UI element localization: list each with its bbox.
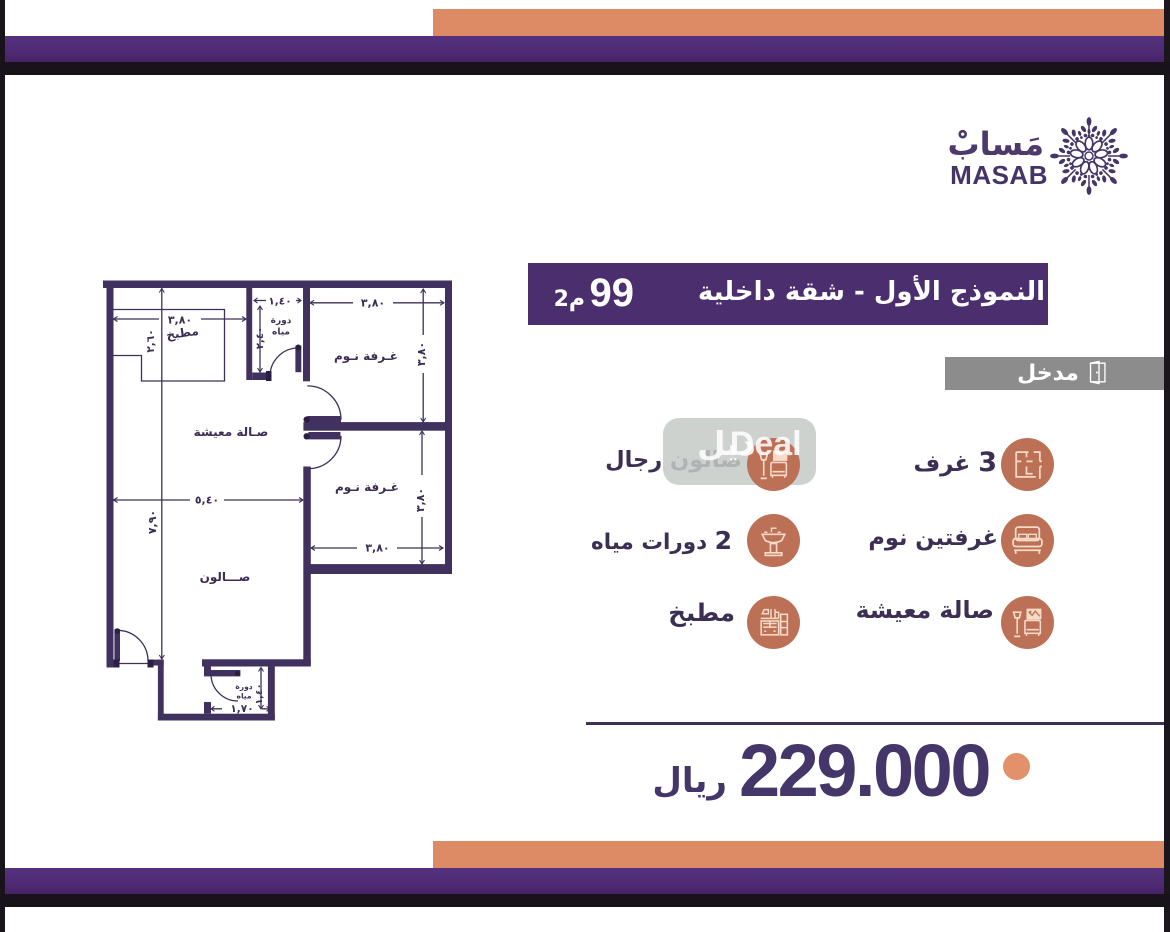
svg-text:صـــالون: صـــالون bbox=[200, 570, 251, 585]
svg-text:٧,٩٠: ٧,٩٠ bbox=[146, 510, 159, 534]
svg-text:صـالة معيشة: صـالة معيشة bbox=[194, 425, 269, 439]
svg-text:مطبخ: مطبخ bbox=[165, 324, 199, 342]
svg-text:١,٤٠: ١,٤٠ bbox=[254, 683, 265, 704]
svg-text:مياه: مياه bbox=[237, 692, 252, 701]
svg-text:دورة: دورة bbox=[235, 682, 252, 691]
svg-text:٣,٨٠: ٣,٨٠ bbox=[415, 342, 428, 366]
svg-text:١,٧٠: ١,٧٠ bbox=[230, 703, 253, 715]
svg-text:٢,٤٠: ٢,٤٠ bbox=[255, 327, 266, 349]
svg-text:دورة: دورة bbox=[271, 316, 292, 326]
svg-text:٣,٨٠: ٣,٨٠ bbox=[414, 488, 427, 512]
svg-text:٣,٨٠: ٣,٨٠ bbox=[361, 297, 385, 310]
svg-text:مياه: مياه bbox=[272, 328, 290, 338]
svg-text:١,٤٠: ١,٤٠ bbox=[268, 296, 291, 308]
svg-text:غـرفة نـوم: غـرفة نـوم bbox=[335, 480, 399, 495]
svg-text:٥,٤٠: ٥,٤٠ bbox=[195, 494, 219, 507]
svg-text:غـرفة نـوم: غـرفة نـوم bbox=[334, 349, 398, 364]
svg-text:٢,٦٠: ٢,٦٠ bbox=[145, 329, 157, 352]
svg-text:٣,٨٠: ٣,٨٠ bbox=[168, 314, 192, 327]
svg-text:٣,٨٠: ٣,٨٠ bbox=[365, 542, 389, 555]
